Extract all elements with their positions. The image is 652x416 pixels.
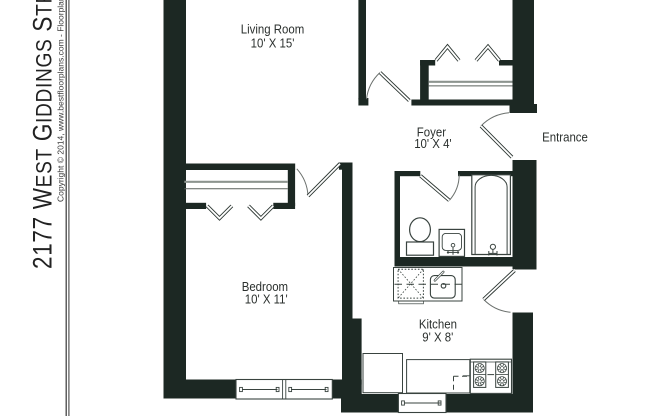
svg-text:10' X 11': 10' X 11' <box>245 292 288 307</box>
svg-text:Copyright © 2014, www.bestfloo: Copyright © 2014, www.bestfloorplans.com… <box>56 0 66 202</box>
svg-text:Entrance: Entrance <box>542 130 588 145</box>
svg-text:2177 WEST GIDDINGS STREET: 2177 WEST GIDDINGS STREET <box>29 0 58 269</box>
svg-text:10' X 4': 10' X 4' <box>414 136 451 151</box>
svg-text:9' X 8': 9' X 8' <box>422 330 453 345</box>
svg-text:Living Room: Living Room <box>241 22 305 37</box>
svg-text:10' X 15': 10' X 15' <box>251 36 295 51</box>
